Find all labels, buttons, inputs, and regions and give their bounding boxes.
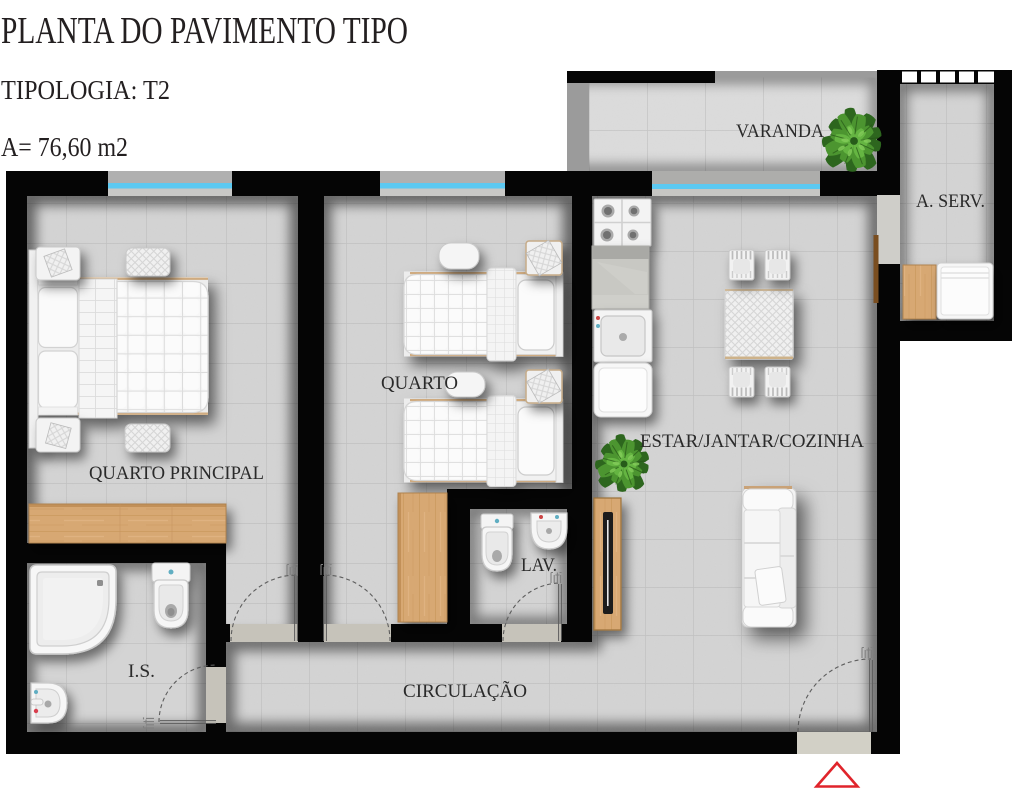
- svg-text:LAV.: LAV.: [521, 555, 557, 576]
- svg-text:I.S.: I.S.: [128, 661, 155, 682]
- svg-text:VARANDA: VARANDA: [736, 121, 824, 142]
- svg-text:A. SERV.: A. SERV.: [916, 191, 985, 212]
- svg-text:CIRCULAÇÃO: CIRCULAÇÃO: [403, 680, 527, 702]
- svg-text:QUARTO PRINCIPAL: QUARTO PRINCIPAL: [89, 463, 264, 484]
- svg-text:ESTAR/JANTAR/COZINHA: ESTAR/JANTAR/COZINHA: [640, 431, 864, 452]
- svg-text:QUARTO: QUARTO: [381, 373, 458, 394]
- svg-text:PLANTA DO PAVIMENTO TIPO: PLANTA DO PAVIMENTO TIPO: [1, 10, 408, 52]
- svg-text:TIPOLOGIA: T2: TIPOLOGIA: T2: [1, 75, 170, 105]
- svg-text:A= 76,60 m2: A= 76,60 m2: [1, 132, 128, 162]
